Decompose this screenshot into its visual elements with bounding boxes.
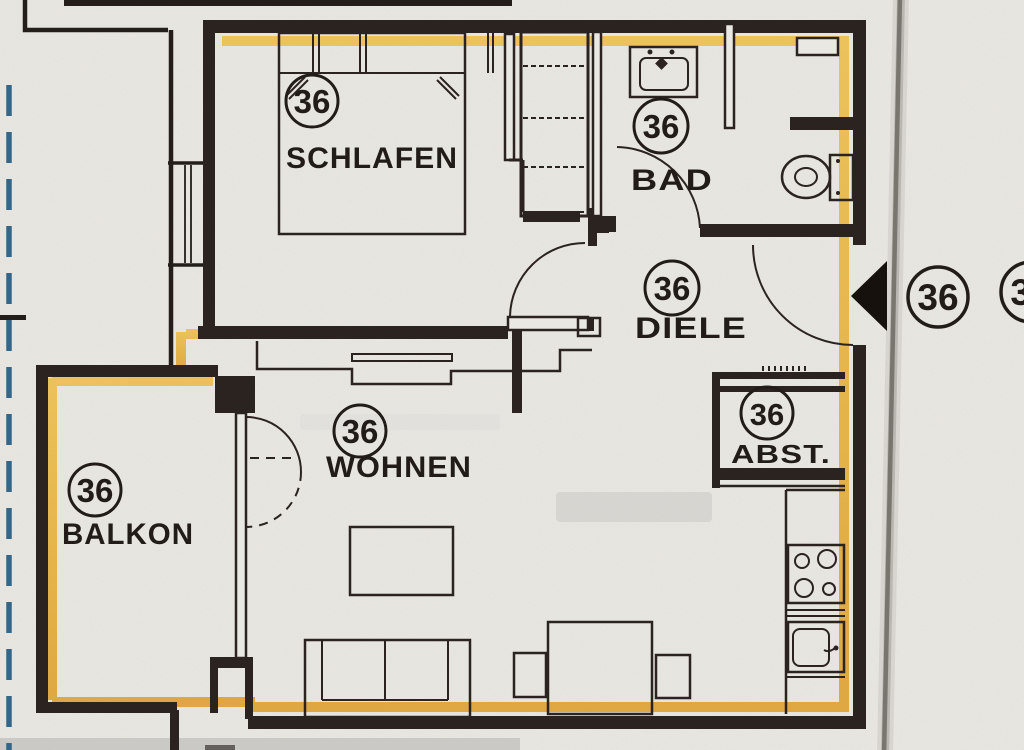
wall-schlafen-south xyxy=(198,326,508,339)
room-label: SCHLAFEN xyxy=(286,142,458,175)
wall-balcony-west xyxy=(36,365,48,712)
door-leaf-diele xyxy=(508,317,588,330)
wall-pier-leg-a xyxy=(210,657,218,713)
scan-crease xyxy=(300,414,500,430)
room-number: 36 xyxy=(643,108,680,145)
room-number: 36 xyxy=(654,270,691,307)
room-label: BALKON xyxy=(62,518,194,551)
scan-cutoff-mark xyxy=(205,745,235,750)
wall-bad-partition xyxy=(725,24,734,128)
floor-plan-scan: 36 SCHLAFEN 36 BAD 36 DIELE 36 ABST. 36 … xyxy=(0,0,1024,750)
room-label: DIELE xyxy=(635,312,747,345)
wall-left xyxy=(203,20,215,332)
wall-below-balcony xyxy=(170,710,179,750)
floor-plan-svg: 36 SCHLAFEN 36 BAD 36 DIELE 36 ABST. 36 … xyxy=(0,0,1024,750)
room-number: 36 xyxy=(750,397,784,432)
wall-bad-west xyxy=(593,32,601,216)
balcony-door-window xyxy=(236,413,246,658)
wall-pier-leg-b xyxy=(245,657,253,719)
neighbor-top-edge xyxy=(64,0,512,6)
wall-balcony-north xyxy=(36,365,218,377)
scan-smudge xyxy=(556,492,712,522)
scan-edge-shadow xyxy=(0,738,520,750)
wall-bad-south xyxy=(700,224,853,237)
wall-bad-door-post xyxy=(588,216,616,232)
wall-right-lower xyxy=(853,345,866,728)
room-label: WOHNEN xyxy=(326,451,472,484)
wall-abst-north-a xyxy=(712,372,845,379)
wall-balcony-pier-top xyxy=(215,376,255,413)
wall-abst-south xyxy=(712,468,845,480)
wall-balcony-south xyxy=(36,702,177,713)
wall-schlafen-east xyxy=(505,34,514,160)
wall-wc-niche xyxy=(790,117,853,130)
marker-number: 36 xyxy=(1010,272,1024,313)
wall-right-upper xyxy=(853,20,866,245)
marker-number: 36 xyxy=(917,277,958,318)
room-label: BAD xyxy=(631,164,713,197)
neighbor-wall-tick xyxy=(0,315,26,320)
wall-shelf xyxy=(797,38,838,55)
room-label: ABST. xyxy=(731,439,831,469)
room-number: 36 xyxy=(77,472,114,509)
room-number: 36 xyxy=(342,413,379,450)
room-number: 36 xyxy=(294,83,331,120)
